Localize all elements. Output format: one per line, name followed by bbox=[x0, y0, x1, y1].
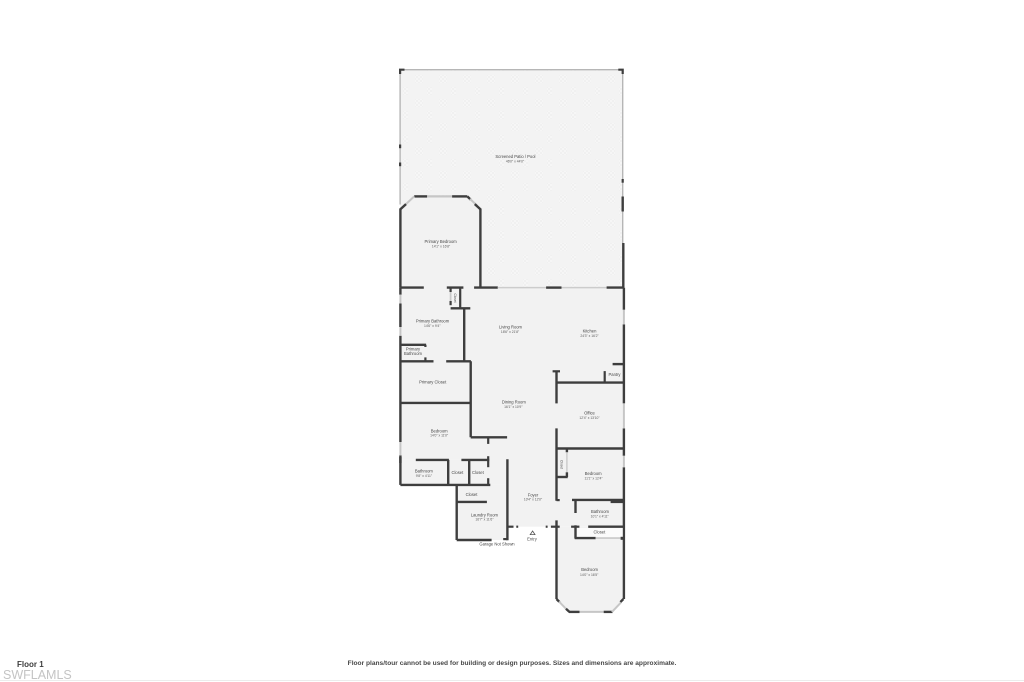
svg-text:Bedroom: Bedroom bbox=[581, 567, 598, 572]
svg-text:Bathroom: Bathroom bbox=[591, 509, 610, 514]
svg-text:Pantry: Pantry bbox=[609, 372, 622, 377]
svg-text:Primary Closet: Primary Closet bbox=[419, 380, 447, 385]
svg-text:Laundry Room: Laundry Room bbox=[471, 512, 499, 517]
svg-text:18'6" x 21'8": 18'6" x 21'8" bbox=[501, 330, 520, 334]
svg-text:Bathroom: Bathroom bbox=[415, 469, 434, 474]
svg-text:14'0" x 11'0": 14'0" x 11'0" bbox=[430, 434, 449, 438]
svg-text:16'7" x 11'6": 16'7" x 11'6" bbox=[475, 518, 494, 522]
svg-text:Primary Bedroom: Primary Bedroom bbox=[424, 239, 457, 244]
svg-text:14'6" x 9'4": 14'6" x 9'4" bbox=[424, 324, 441, 328]
svg-text:Closet: Closet bbox=[594, 530, 607, 535]
svg-text:Closet: Closet bbox=[466, 492, 479, 497]
svg-text:Garage Not Shown: Garage Not Shown bbox=[479, 542, 515, 547]
svg-text:Office: Office bbox=[584, 411, 595, 416]
svg-text:Foyer: Foyer bbox=[528, 492, 539, 497]
svg-text:Entry: Entry bbox=[527, 536, 538, 541]
svg-text:Dining Room: Dining Room bbox=[502, 399, 526, 404]
svg-text:14'1" x 16'8": 14'1" x 16'8" bbox=[432, 245, 451, 249]
svg-text:10'4" x 12'0": 10'4" x 12'0" bbox=[524, 498, 543, 502]
svg-text:16'1" x 10'9": 16'1" x 10'9" bbox=[504, 405, 523, 409]
svg-text:10'1" x 4'11": 10'1" x 4'11" bbox=[591, 514, 610, 518]
svg-text:Closet: Closet bbox=[559, 460, 563, 469]
svg-text:24'3" x 16'2": 24'3" x 16'2" bbox=[580, 334, 599, 338]
svg-text:Living Room: Living Room bbox=[499, 324, 523, 329]
svg-text:46'0" x 44'0": 46'0" x 44'0" bbox=[506, 160, 525, 164]
svg-text:Bathroom: Bathroom bbox=[404, 351, 423, 356]
svg-text:Screened Patio / Pool: Screened Patio / Pool bbox=[495, 154, 535, 159]
svg-text:Kitchen: Kitchen bbox=[583, 328, 598, 333]
svg-text:Closet: Closet bbox=[472, 470, 485, 475]
svg-text:Primary Bathroom: Primary Bathroom bbox=[416, 319, 450, 324]
svg-text:Bedroom: Bedroom bbox=[585, 471, 602, 476]
svg-text:12'4" x 13'10": 12'4" x 13'10" bbox=[579, 416, 600, 420]
svg-text:Closet: Closet bbox=[452, 470, 465, 475]
svg-text:14'0" x 16'5": 14'0" x 16'5" bbox=[580, 573, 599, 577]
svg-text:11'1" x 12'4": 11'1" x 12'4" bbox=[584, 477, 603, 481]
svg-text:9'8" x 4'11": 9'8" x 4'11" bbox=[416, 474, 433, 478]
svg-text:Closet: Closet bbox=[453, 293, 457, 302]
